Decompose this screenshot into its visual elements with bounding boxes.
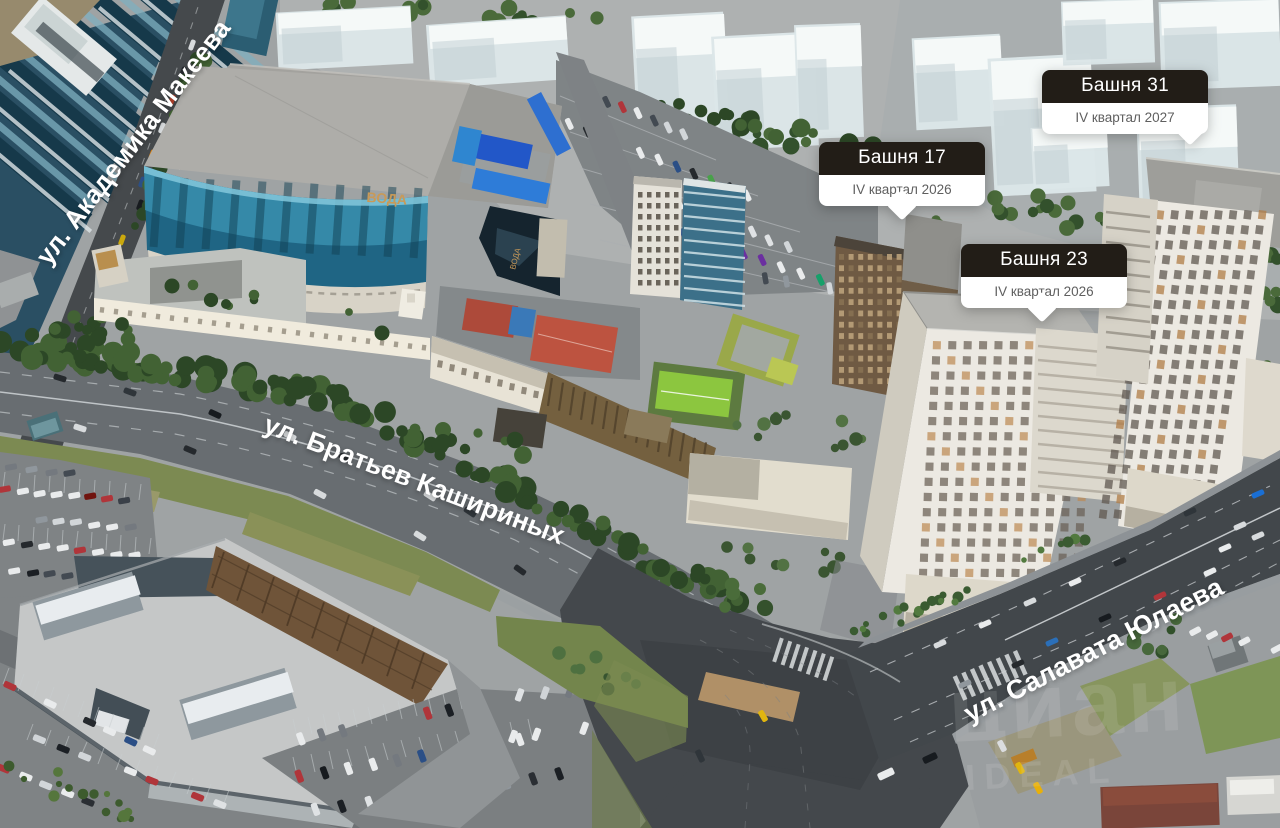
svg-text:ВОДА: ВОДА [366, 189, 408, 208]
svg-text:IDEAL: IDEAL [964, 749, 1119, 798]
